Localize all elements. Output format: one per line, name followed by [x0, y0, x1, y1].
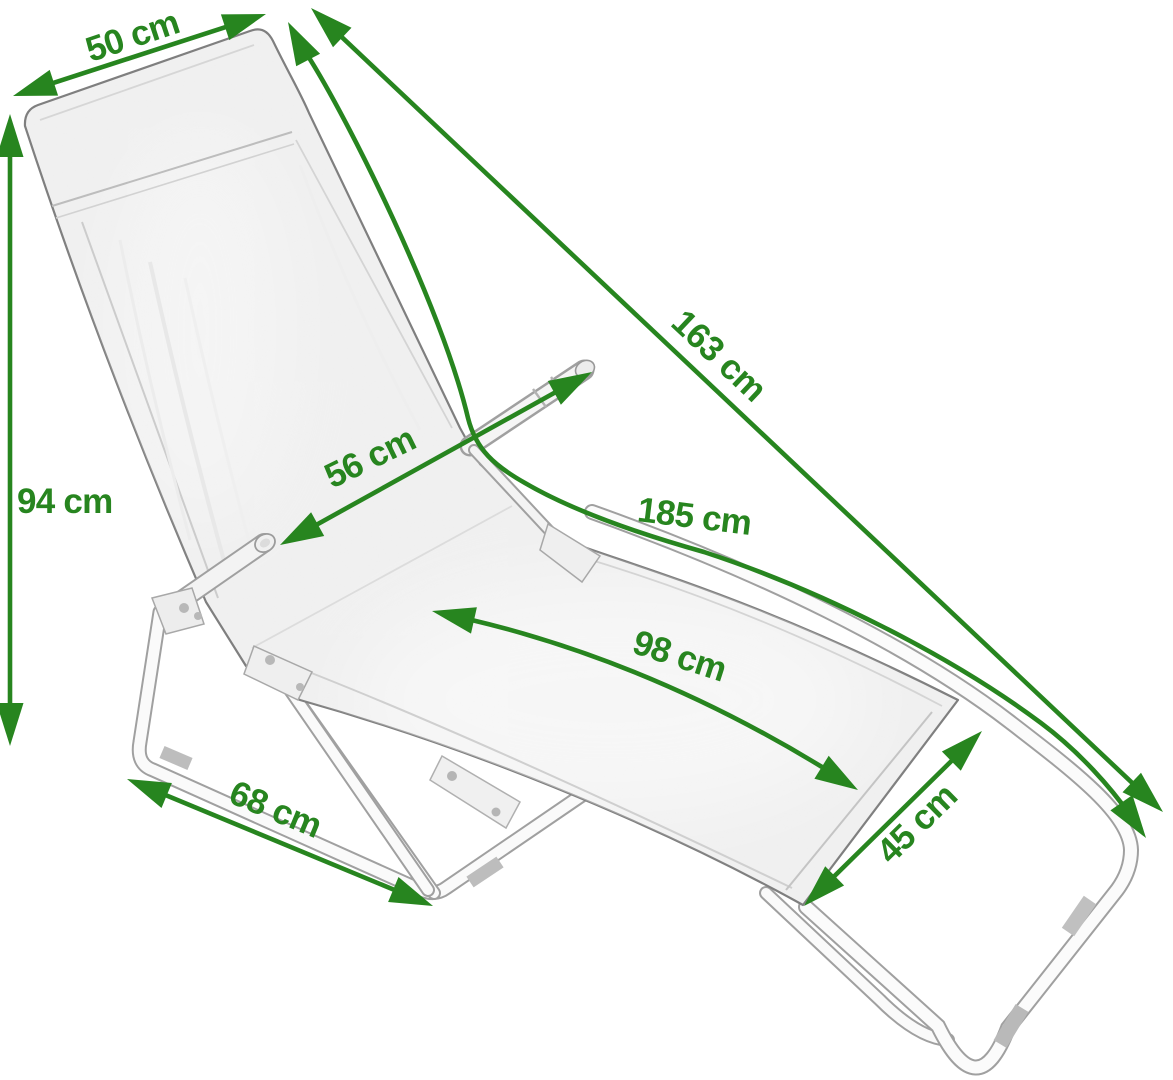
- svg-text:94 cm: 94 cm: [17, 482, 113, 521]
- svg-text:68 cm: 68 cm: [224, 773, 327, 846]
